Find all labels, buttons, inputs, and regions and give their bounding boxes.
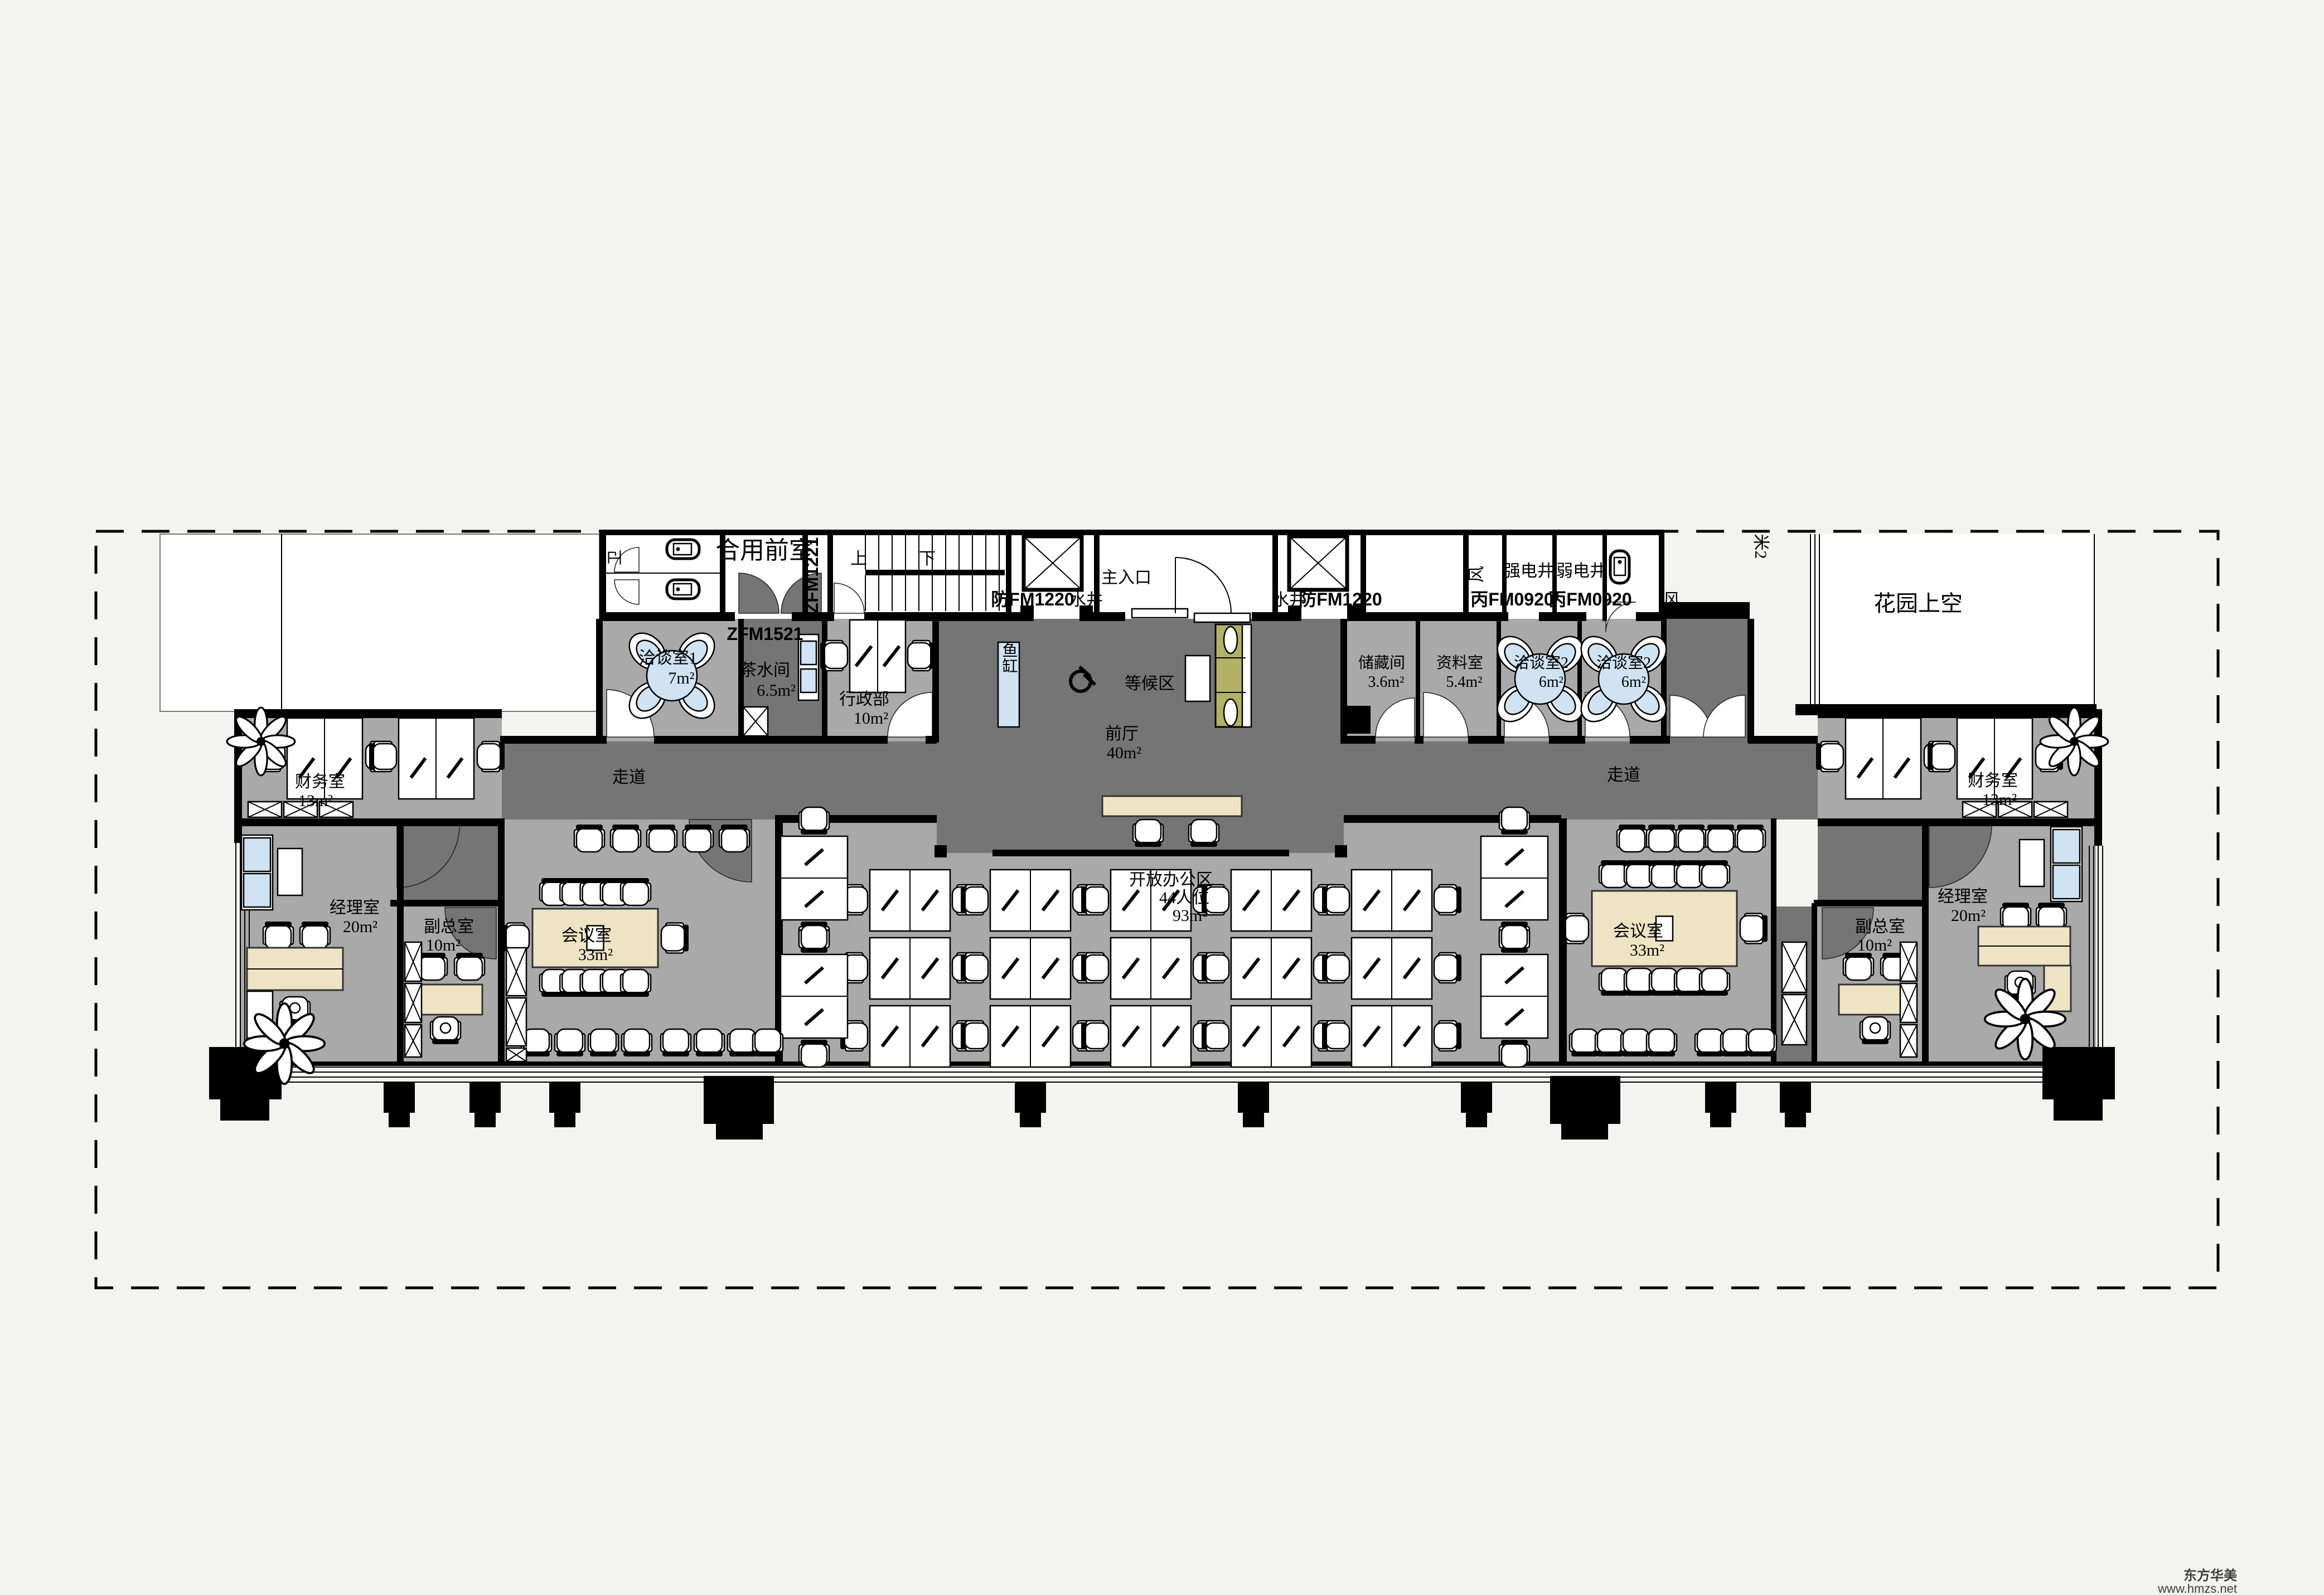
label-corridor-west: 走道 [612,768,646,787]
wall [1771,818,1776,1065]
chair [799,1040,829,1067]
column [1710,1113,1731,1127]
floor-plan-canvas: 卫 合用前室 ZFM1221 上 下 防FM1220 水井 主入口 水井 防FM… [0,0,2324,1595]
chair [1928,741,1955,772]
floor-dark [1818,825,1924,906]
chair [1202,1021,1229,1051]
label-admin-area: 10m² [854,709,888,728]
column [1780,1083,1811,1113]
chair [719,825,749,852]
label-meeting-west: 会议室 [561,927,612,945]
sliding-door [1132,609,1188,618]
wall [1415,736,1424,744]
office-floor-plan: 卫 合用前室 ZFM1221 上 下 防FM1220 水井 主入口 水井 防FM… [0,0,2324,1595]
chair [454,953,485,980]
label-negotiation2b: 洽谈室2 [1596,654,1651,672]
chair [1617,825,1647,852]
wall [599,530,606,621]
chair [1561,914,1589,944]
wall [1416,619,1420,743]
wall [1818,818,2102,826]
label-negotiation2a-area: 6m² [1539,673,1563,691]
wall [1335,845,1347,857]
label-meeting-east-area: 33m² [1630,941,1664,959]
label-waiting-area: 等候区 [1125,675,1175,693]
chair [799,925,829,953]
column [384,1083,415,1113]
column [389,1113,410,1127]
label-negotiation1: 洽谈室1 [639,649,698,667]
elevator-right [1289,536,1347,590]
chair [1647,825,1677,852]
label-door-fm0920-a: 丙FM0920 [1470,589,1553,609]
chair [574,825,604,852]
label-deputy-east: 副总室 [1855,918,1905,936]
label-finance-west-area: 13m² [298,792,333,810]
column [1466,1113,1487,1127]
chair [683,825,713,852]
plant [227,707,295,775]
label-vent-right: 风 [1663,591,1680,609]
chair [263,922,293,949]
label-front-hall: 前厅 [1105,725,1139,743]
label-door-fm1220-right: 防FM1220 [1299,589,1382,609]
chair [961,885,988,915]
sofa-pillow [1224,627,1237,653]
chair [1647,1029,1677,1056]
wall [1661,619,1667,743]
chair [555,1029,585,1056]
column [2054,1099,2103,1121]
wall [1747,619,1754,743]
chair [1499,925,1529,953]
chair [1202,953,1229,983]
label-finance-east: 财务室 [1968,772,2018,790]
label-front-hall-area: 40m² [1107,744,1141,762]
label-open-office-seats: 44人位 [1159,889,1209,907]
reception-chair [1189,820,1219,847]
wall [1922,826,1929,1065]
wall [500,736,607,744]
reception-chair [1133,820,1163,847]
label-garden-void: 花园上空 [1873,591,1963,616]
chair [369,741,396,772]
stair-rail [865,570,1005,575]
wall [935,845,947,857]
toilet-fixture [667,540,699,559]
wall [1349,612,1508,621]
column [1238,1083,1269,1113]
coffee-table [278,849,302,895]
column [475,1113,496,1127]
chair [1746,1029,1776,1056]
column [469,1083,501,1113]
chair [1434,953,1461,983]
label-main-entrance: 主入口 [1101,569,1151,587]
office-chair [1860,1017,1890,1044]
watermark-site: www.hmzs.net [2157,1582,2237,1595]
label-strong-power-shaft: 强电井 [1504,562,1554,580]
chair [1735,825,1765,852]
label-storage: 储藏间 [1358,654,1405,672]
chair [1499,807,1529,835]
label-shared-front-room: 合用前室 [715,537,814,564]
sliding-door [1194,613,1250,622]
chair [1843,953,1873,980]
chair [621,878,651,905]
wall [1468,736,1504,744]
wall [240,818,502,826]
label-finance-west: 财务室 [295,773,345,791]
label-vent-left: 风 [1468,566,1486,583]
label-finance-east-area: 13m² [1982,791,2017,809]
plant [244,1003,325,1084]
chair [622,1029,652,1056]
label-manager-west: 经理室 [330,899,380,917]
label-weak-power-shaft: 弱电井 [1556,562,1606,580]
wall [1630,736,1670,744]
wall [654,736,888,744]
label-storage-area: 3.6m² [1368,673,1404,691]
wall [1795,704,2097,715]
column [1243,1113,1264,1127]
label-deputy-east-area: 10m² [1857,936,1892,954]
chair [611,825,641,852]
chair [1740,914,1768,944]
label-door-fm0920-b: 丙FM0920 [1548,589,1631,609]
chair [1322,885,1349,915]
label-corridor-east: 走道 [1607,766,1640,784]
chair [1676,825,1706,852]
label-deputy-west-area: 10m² [426,936,461,954]
label-manager-west-area: 20m² [343,918,377,936]
column [1561,1124,1608,1140]
chair [753,1029,783,1056]
sofa-pillow [1224,699,1237,726]
label-admin: 行政部 [839,690,889,709]
chair [1434,1021,1461,1051]
wall [1748,736,1818,744]
chair [661,1029,691,1056]
wall [599,612,735,621]
wc-toilet-fixture [1610,551,1629,583]
label-pantry: 茶水间 [740,661,790,680]
wall [397,826,404,1065]
wall [1340,736,1376,744]
column [2042,1047,2115,1099]
sofa-cushion [244,874,270,907]
sink [801,641,816,665]
chair [1434,885,1461,915]
sofa-cushion [244,838,270,871]
label-deputy-west: 副总室 [424,918,474,936]
wall [822,619,827,743]
label-door-fm1220-left: 防FM1220 [991,589,1074,609]
wall [234,709,502,718]
label-archive: 资料室 [1436,654,1483,672]
column [1015,1083,1046,1113]
label-fish-tank: 鱼缸 [1000,642,1018,673]
elevator-left [1024,536,1082,590]
column [554,1113,575,1127]
label-negotiation1-area: 7m² [668,669,694,687]
office-chair [430,1017,461,1044]
chair [621,969,651,997]
label-negotiation2b-area: 6m² [1621,673,1646,691]
chair [1816,741,1843,772]
chair [1081,1021,1108,1051]
column [716,1124,763,1140]
column [1020,1113,1041,1127]
wall [596,619,603,743]
chair [908,641,935,671]
chair [588,1029,618,1056]
plant [2040,707,2108,775]
label-manager-east-area: 20m² [1951,906,1986,925]
wall [932,619,939,743]
label-axis-note: 米2 [1751,534,1770,559]
chair [477,741,505,772]
column [1461,1083,1492,1113]
chair [1081,885,1108,915]
chair [661,923,689,953]
plant [1985,979,2065,1059]
column [220,1099,269,1121]
wall [390,900,500,906]
chair [1322,1021,1349,1051]
chair [1081,953,1108,983]
plan-shape [1242,624,1251,727]
floor-dark [502,741,937,820]
reception-counter [1102,796,1242,816]
chair [1322,953,1349,983]
wall [1497,619,1501,743]
chair [1700,968,1730,996]
label-pantry-area: 6.5m² [757,681,796,700]
label-open-office-area: 93m² [1173,906,1207,925]
sink [801,669,816,692]
sofa-cushion [2053,865,2080,899]
floor-dark [1344,741,1818,820]
watermark-brand: 东方华美 [2183,1568,2237,1583]
chair [1499,1040,1529,1067]
column [1550,1076,1620,1124]
equipment-box [1345,706,1371,734]
column [549,1083,580,1113]
column [1705,1083,1736,1113]
label-stair-down: 下 [919,550,936,568]
label-open-office: 开放办公区 [1129,871,1213,889]
chair [300,922,330,949]
label-meeting-east: 会议室 [1613,922,1663,940]
wall [992,850,1289,856]
wall [1814,900,1923,906]
label-door-zfm1521: ZFM1521 [727,624,803,644]
chair [1706,825,1736,852]
watermark: 东方华美 www.hmzs.net [2157,1568,2237,1595]
chair [1700,860,1730,888]
toilet-fixture [667,580,699,599]
coffee-table [2020,840,2044,886]
chair [694,1029,724,1056]
label-archive-area: 5.4m² [1446,673,1482,691]
wall [926,736,937,744]
wall [1577,619,1582,743]
garden-void-area [1809,534,2095,716]
label-door-zfm1221: ZFM1221 [802,537,822,614]
label-stair-up: 上 [850,550,867,568]
chair [961,953,988,983]
sofa-cushion [2053,830,2080,863]
chair [961,1021,988,1051]
column [1785,1113,1806,1127]
wall [1252,612,1291,621]
label-toilet: 卫 [607,550,624,565]
west-terrace [160,534,599,711]
column [704,1076,774,1124]
wall [1812,903,1817,1065]
coffee-table [1185,656,1210,701]
label-meeting-west-area: 33m² [578,946,613,964]
chair [799,807,829,835]
label-negotiation2a: 洽谈室2 [1514,654,1568,672]
wall [827,530,833,621]
wall [1549,736,1585,744]
label-manager-east: 经理室 [1938,888,1988,906]
label-water-shaft-left: 水井 [1069,591,1103,609]
chair [820,641,848,671]
chair [647,825,677,852]
